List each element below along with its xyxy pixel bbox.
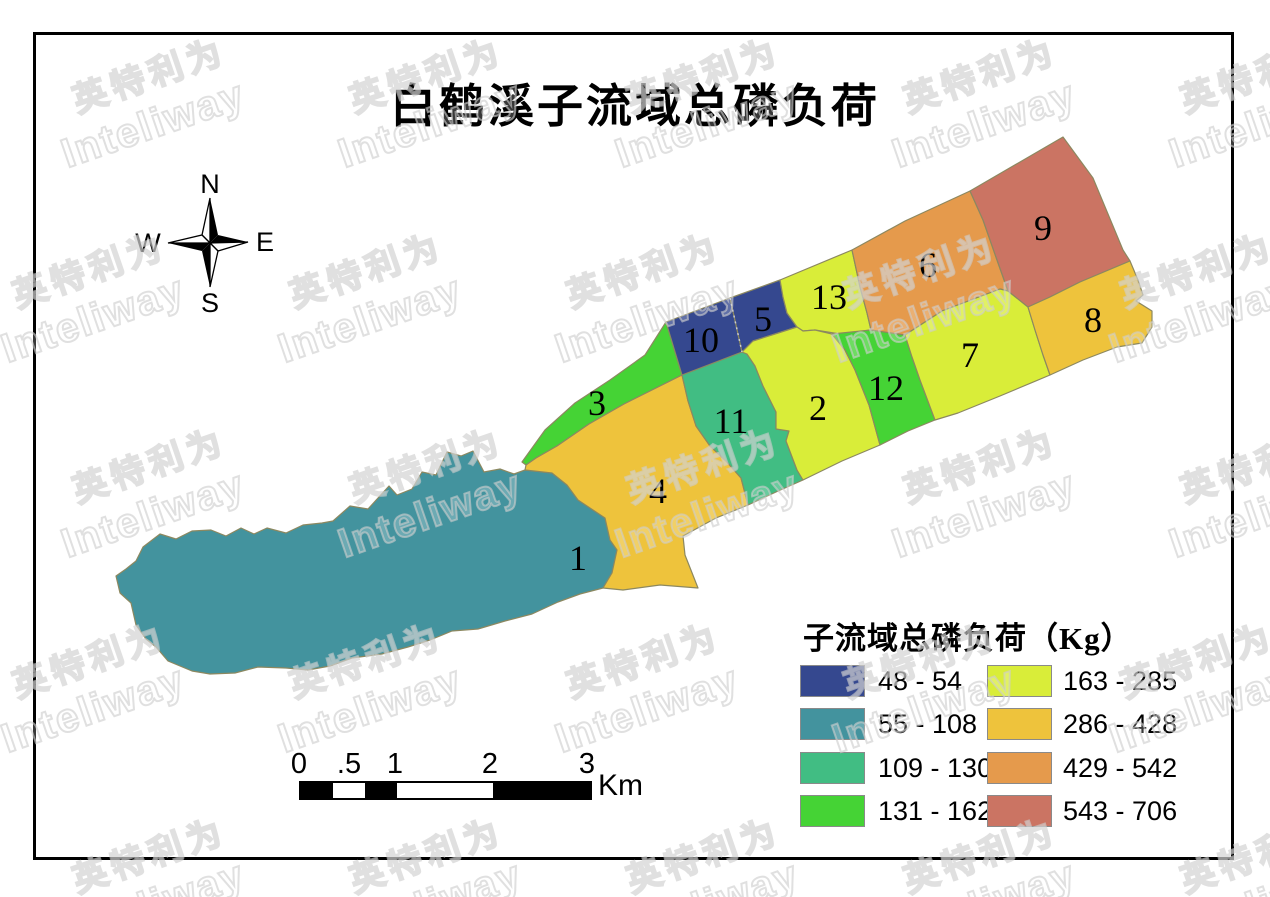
region-label-1: 1 <box>569 538 587 578</box>
region-label-7: 7 <box>961 335 979 375</box>
region-label-6: 6 <box>919 245 937 285</box>
legend-label: 429 - 542 <box>1063 752 1177 784</box>
legend-swatch-48-54 <box>800 665 865 697</box>
north-arrow-white-s <box>210 243 218 287</box>
region-label-10: 10 <box>683 320 719 360</box>
scale-tick-label: 0 <box>291 748 307 781</box>
map-document: 白鹤溪子流域总磷负荷 13411105132126798 N S W E 子流域… <box>0 0 1270 897</box>
scale-bar-segment <box>333 783 365 798</box>
scale-bar-segment <box>365 783 397 798</box>
legend-label: 55 - 108 <box>878 708 977 740</box>
north-arrow: N S W E <box>135 169 274 318</box>
region-label-2: 2 <box>809 388 827 428</box>
legend-label: 286 - 428 <box>1063 708 1177 740</box>
scale-bar-segment <box>493 783 590 798</box>
compass-w-label: W <box>135 228 161 258</box>
scale-tick-label: 3 <box>579 748 595 781</box>
scale-bar <box>299 781 592 800</box>
scale-tick-label: 1 <box>387 748 403 781</box>
region-label-11: 11 <box>714 401 749 441</box>
region-label-8: 8 <box>1084 300 1102 340</box>
legend-swatch-286-428 <box>987 708 1052 740</box>
region-label-13: 13 <box>811 277 847 317</box>
compass-e-label: E <box>256 227 274 257</box>
legend-title: 子流域总磷负荷（Kg） <box>803 613 1133 658</box>
region-label-3: 3 <box>588 383 606 423</box>
region-label-12: 12 <box>868 368 904 408</box>
legend-label: 163 - 285 <box>1063 665 1177 697</box>
legend-label: 109 - 130 <box>878 752 992 784</box>
scale-bar-segment <box>301 783 333 798</box>
region-label-5: 5 <box>754 299 772 339</box>
legend-swatch-55-108 <box>800 708 865 740</box>
subwatershed-region-1 <box>116 451 617 674</box>
legend-label: 48 - 54 <box>878 665 962 697</box>
north-arrow-white-w <box>168 235 210 243</box>
legend-label: 543 - 706 <box>1063 795 1177 827</box>
region-label-4: 4 <box>649 471 667 511</box>
compass-s-label: S <box>201 288 219 318</box>
legend-label: 131 - 162 <box>878 795 992 827</box>
region-label-9: 9 <box>1034 208 1052 248</box>
scale-tick-label: .5 <box>337 748 361 781</box>
scale-bar-segment <box>397 783 493 798</box>
scale-tick-label: 2 <box>482 748 498 781</box>
compass-n-label: N <box>200 169 220 199</box>
subwatershed-regions <box>116 137 1152 674</box>
legend-swatch-109-130 <box>800 752 865 784</box>
legend-swatch-429-542 <box>987 752 1052 784</box>
scale-unit-label: Km <box>598 769 643 803</box>
legend-swatch-163-285 <box>987 665 1052 697</box>
legend-swatch-543-706 <box>987 795 1052 827</box>
legend-swatch-131-162 <box>800 795 865 827</box>
